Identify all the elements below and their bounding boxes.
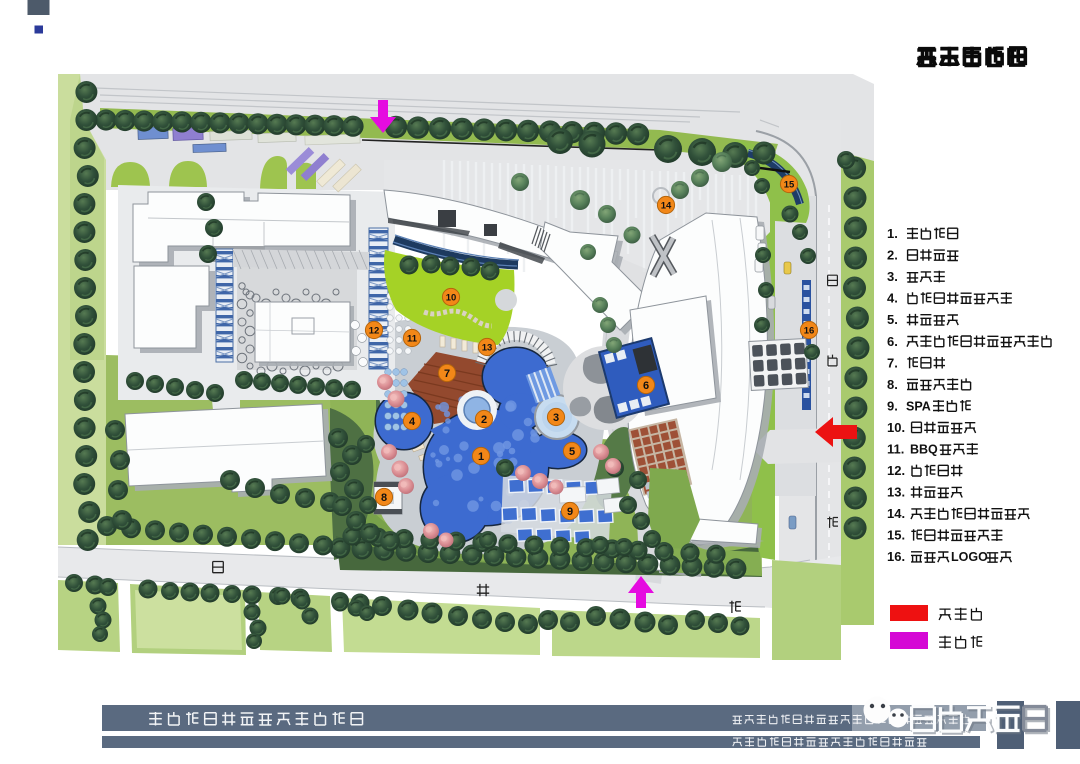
svg-text:4.: 4. bbox=[887, 291, 898, 306]
svg-text:16.: 16. bbox=[887, 549, 905, 564]
svg-text:8.: 8. bbox=[887, 377, 898, 392]
svg-text:14: 14 bbox=[661, 200, 672, 211]
svg-text:11.: 11. bbox=[887, 442, 904, 457]
svg-text:7: 7 bbox=[444, 368, 450, 380]
svg-text:13.: 13. bbox=[887, 485, 905, 500]
svg-text:5: 5 bbox=[569, 446, 575, 458]
svg-text:6.: 6. bbox=[887, 334, 898, 349]
svg-text:2.: 2. bbox=[887, 248, 898, 263]
svg-text:12.: 12. bbox=[887, 463, 905, 478]
svg-text:8: 8 bbox=[381, 492, 387, 504]
svg-text:15.: 15. bbox=[887, 528, 905, 543]
svg-text:3: 3 bbox=[553, 412, 559, 424]
svg-text:11: 11 bbox=[407, 333, 418, 344]
svg-text:16: 16 bbox=[804, 325, 815, 336]
svg-text:SPA: SPA bbox=[906, 399, 931, 413]
svg-text:12: 12 bbox=[369, 325, 380, 336]
svg-text:9: 9 bbox=[567, 506, 573, 518]
svg-text:15: 15 bbox=[784, 179, 795, 190]
svg-text:LOGO: LOGO bbox=[951, 550, 988, 564]
svg-text:3.: 3. bbox=[887, 269, 898, 284]
svg-text:7.: 7. bbox=[887, 355, 898, 370]
svg-text:13: 13 bbox=[482, 342, 493, 353]
svg-text:1: 1 bbox=[478, 451, 484, 463]
svg-text:14.: 14. bbox=[887, 506, 905, 521]
svg-text:10: 10 bbox=[446, 292, 457, 303]
svg-text:9.: 9. bbox=[887, 398, 898, 413]
svg-text:2: 2 bbox=[481, 414, 487, 426]
svg-text:10.: 10. bbox=[887, 420, 905, 435]
svg-text:1.: 1. bbox=[887, 226, 898, 241]
svg-text:5.: 5. bbox=[887, 312, 898, 327]
svg-text:4: 4 bbox=[409, 416, 416, 428]
svg-text:BBQ: BBQ bbox=[910, 443, 938, 457]
svg-text:6: 6 bbox=[643, 380, 649, 392]
